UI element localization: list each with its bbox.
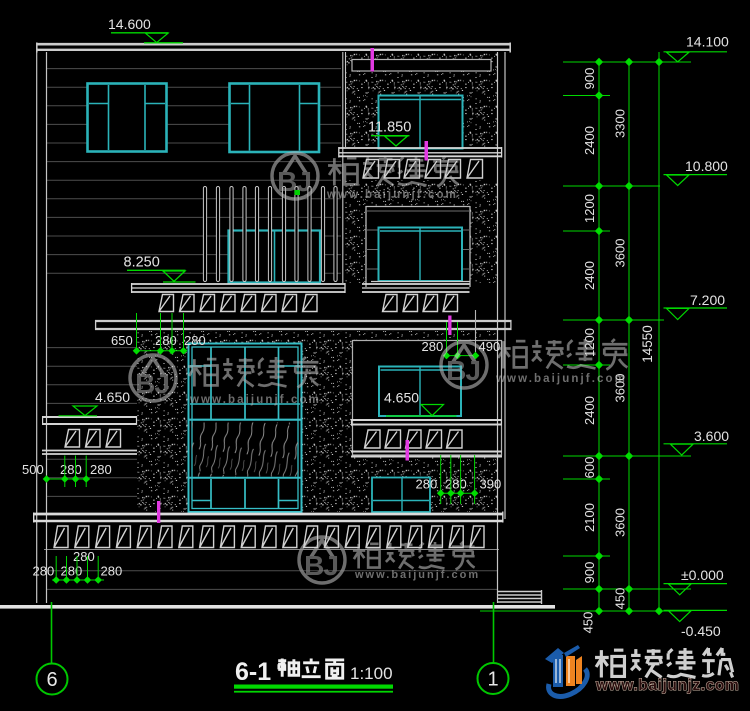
svg-text:4.650: 4.650 <box>384 390 419 406</box>
svg-text:www.baijunjf.com: www.baijunjf.com <box>326 189 458 201</box>
svg-text:280: 280 <box>60 462 82 477</box>
svg-text:1:100: 1:100 <box>350 664 393 683</box>
svg-text:2100: 2100 <box>582 503 597 532</box>
svg-text:2400: 2400 <box>582 396 597 425</box>
svg-text:14550: 14550 <box>640 325 655 363</box>
svg-text:650: 650 <box>111 333 133 348</box>
svg-text:2400: 2400 <box>582 261 597 290</box>
svg-text:www.baijunjf.com: www.baijunjf.com <box>354 569 480 581</box>
svg-text:4.650: 4.650 <box>95 389 130 405</box>
svg-text:280: 280 <box>101 564 123 579</box>
svg-text:280: 280 <box>184 333 206 348</box>
svg-text:600: 600 <box>582 457 597 479</box>
svg-text:10.800: 10.800 <box>685 158 728 174</box>
svg-text:2400: 2400 <box>582 126 597 155</box>
svg-text:450: 450 <box>613 588 628 610</box>
svg-text:280: 280 <box>155 333 177 348</box>
svg-text:450: 450 <box>581 612 596 634</box>
svg-text:390: 390 <box>480 477 502 492</box>
svg-text:6: 6 <box>46 669 57 691</box>
svg-text:280: 280 <box>445 477 467 492</box>
svg-text:6-1: 6-1 <box>235 658 271 686</box>
svg-text:www.baijunjf.com: www.baijunjf.com <box>495 373 627 385</box>
svg-text:1: 1 <box>487 669 498 691</box>
svg-text:280: 280 <box>422 339 444 354</box>
svg-text:3300: 3300 <box>613 109 628 138</box>
svg-text:14.100: 14.100 <box>686 34 729 50</box>
svg-text:14.600: 14.600 <box>108 16 151 32</box>
svg-text:-0.450: -0.450 <box>681 623 721 639</box>
svg-text:7.200: 7.200 <box>690 292 725 308</box>
svg-text:3.600: 3.600 <box>694 428 729 444</box>
svg-text:3600: 3600 <box>613 508 628 537</box>
svg-text:280: 280 <box>90 462 112 477</box>
svg-text:900: 900 <box>582 562 597 584</box>
svg-text:www.baijunjz.com: www.baijunjz.com <box>595 677 739 694</box>
svg-text:www.baijunjf.com: www.baijunjf.com <box>189 394 321 406</box>
svg-text:1200: 1200 <box>582 194 597 223</box>
svg-text:280: 280 <box>416 477 438 492</box>
svg-text:11.850: 11.850 <box>368 120 411 136</box>
svg-text:±0.000: ±0.000 <box>681 567 724 583</box>
svg-text:500: 500 <box>22 462 44 477</box>
svg-text:3600: 3600 <box>613 239 628 268</box>
svg-text:8.250: 8.250 <box>124 255 160 271</box>
svg-text:280: 280 <box>73 549 95 564</box>
svg-text:900: 900 <box>582 68 597 90</box>
svg-text:280: 280 <box>61 564 83 579</box>
svg-text:280: 280 <box>33 564 55 579</box>
